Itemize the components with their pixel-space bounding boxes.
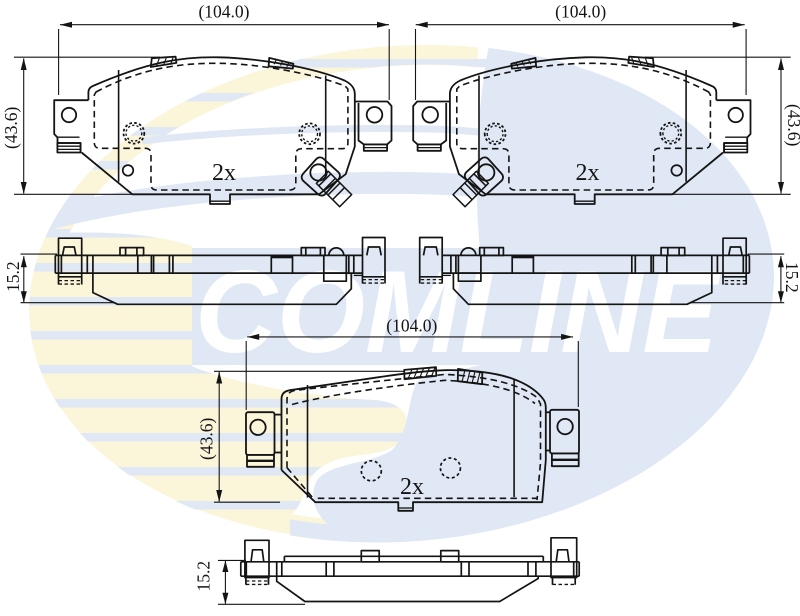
- svg-text:(43.6): (43.6): [1, 107, 21, 149]
- svg-text:2x: 2x: [576, 160, 600, 186]
- svg-text:(43.6): (43.6): [197, 418, 217, 460]
- svg-text:2x: 2x: [212, 160, 236, 186]
- svg-text:15.2: 15.2: [3, 261, 23, 292]
- svg-text:15.2: 15.2: [194, 561, 214, 592]
- svg-text:(104.0): (104.0): [555, 2, 606, 22]
- svg-text:(104.0): (104.0): [198, 2, 249, 22]
- svg-text:(104.0): (104.0): [386, 316, 437, 336]
- svg-text:(43.6): (43.6): [784, 104, 800, 146]
- svg-text:15.2: 15.2: [782, 262, 800, 293]
- svg-text:2x: 2x: [400, 474, 424, 500]
